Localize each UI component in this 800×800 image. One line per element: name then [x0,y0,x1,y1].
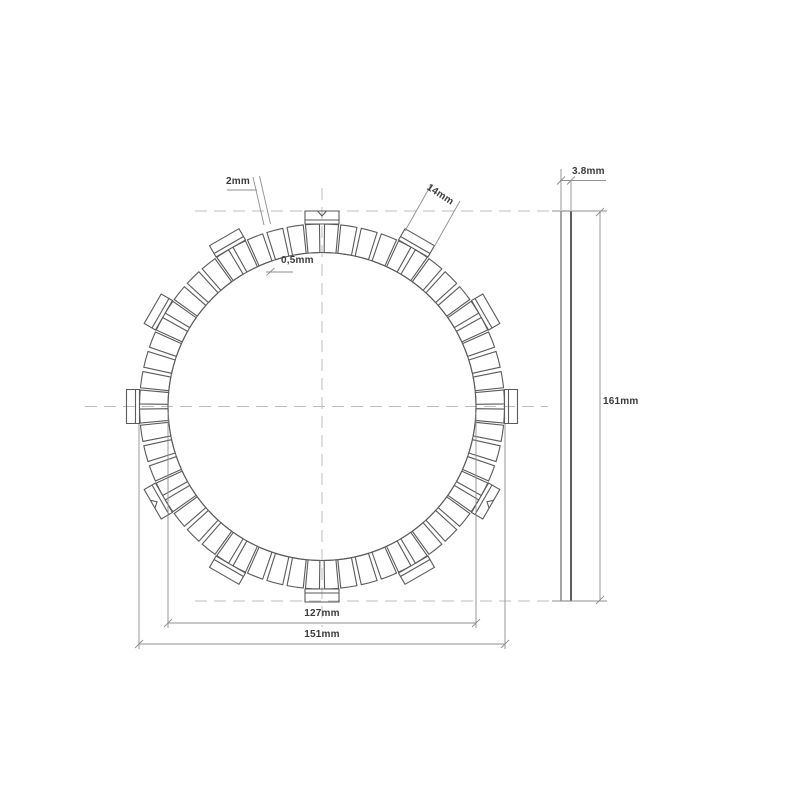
clutch-friction-plate-drawing [0,0,800,800]
dimension-label-slit-width: 2mm [226,177,250,187]
dimension-label-inner-diameter: 127mm [304,609,339,619]
dimension-label-thickness: 3.8mm [572,167,605,177]
dimension-lines [135,169,607,649]
centerlines [85,188,553,627]
side-view-plate [561,211,571,601]
dimension-label-pad-chamfer: 0,5mm [281,256,314,266]
technical-drawing-page: 2mm 14mm 0,5mm 3.8mm 161mm 127mm 151mm [0,0,800,800]
dimension-label-overall-diameter: 161mm [603,397,638,407]
dimension-label-outer-diameter: 151mm [304,630,339,640]
